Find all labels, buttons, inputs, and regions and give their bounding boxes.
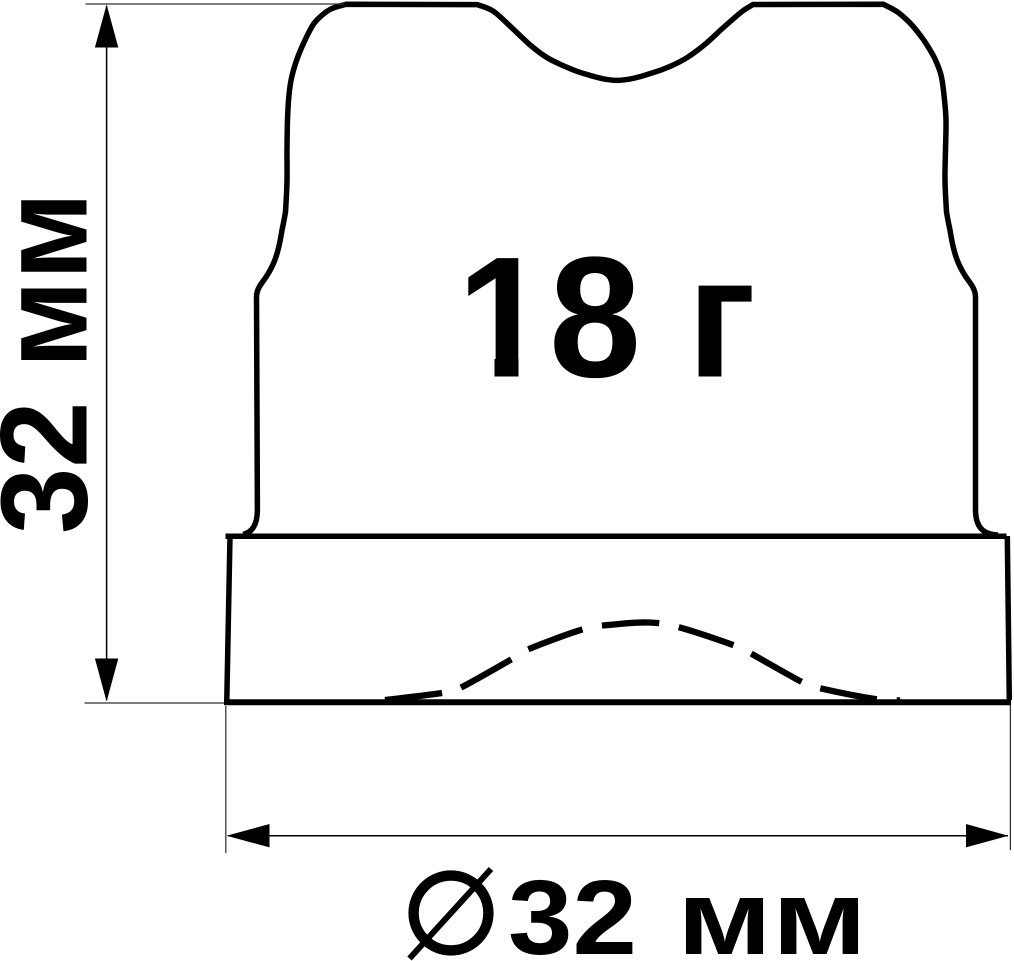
svg-text:32 мм: 32 мм: [0, 192, 114, 534]
svg-text:18 г: 18 г: [457, 222, 756, 414]
svg-text:мм: мм: [677, 859, 867, 961]
svg-text:32: 32: [508, 859, 637, 961]
